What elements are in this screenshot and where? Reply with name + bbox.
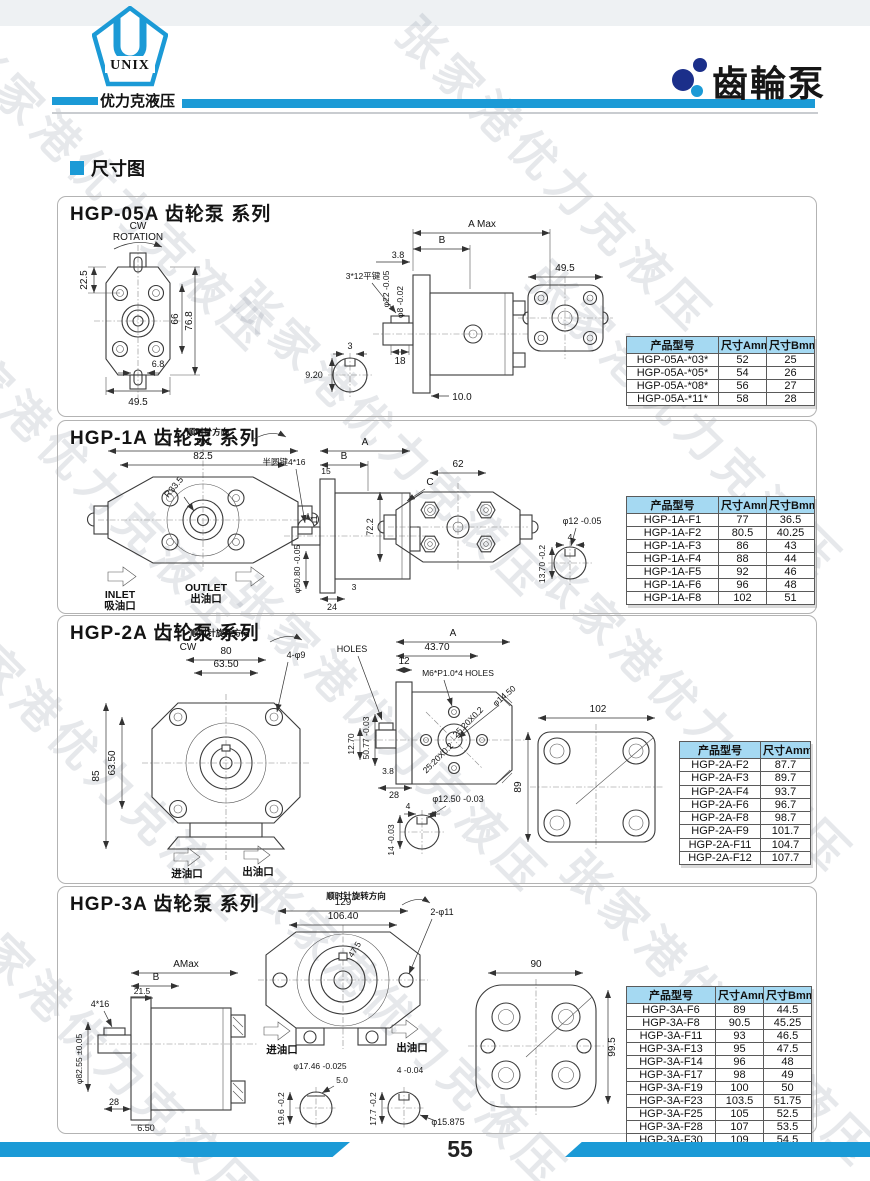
table-cell: 26 — [767, 367, 815, 380]
svg-text:102: 102 — [590, 704, 607, 715]
table-header-cell: 尺寸Amm — [761, 742, 811, 759]
svg-text:HOLES: HOLES — [337, 644, 368, 654]
table-cell: 45.25 — [764, 1017, 812, 1030]
svg-text:出油口: 出油口 — [242, 865, 274, 878]
svg-text:80: 80 — [220, 646, 232, 657]
table-cell: 56 — [719, 380, 767, 393]
table-cell: HGP-3A-F6 — [627, 1004, 716, 1017]
svg-text:3.8: 3.8 — [392, 250, 405, 260]
svg-text:出油口: 出油口 — [190, 592, 222, 605]
table-header-cell: 产品型号 — [627, 987, 716, 1004]
table-row: HGP-3A-F139547.5 — [627, 1043, 812, 1056]
svg-text:6.8: 6.8 — [152, 359, 165, 369]
svg-text:89: 89 — [513, 781, 524, 793]
table-cell: 58 — [719, 393, 767, 406]
table-cell: 86 — [719, 540, 767, 553]
svg-text:76.8: 76.8 — [184, 311, 195, 331]
table-row: HGP-3A-F2810753.5 — [627, 1121, 812, 1134]
header-divider — [52, 112, 818, 114]
table-row: HGP-2A-F389.7 — [680, 772, 811, 785]
svg-text:90: 90 — [530, 959, 542, 970]
table-cell: HGP-2A-F11 — [680, 838, 761, 851]
table-header-row: 产品型号尺寸Amm尺寸Bmm — [627, 337, 815, 354]
svg-text:3: 3 — [352, 582, 357, 592]
table-cell: HGP-3A-F17 — [627, 1069, 716, 1082]
table-cell: 92 — [719, 566, 767, 579]
svg-text:顺时针旋转方向: 顺时针旋转方向 — [190, 628, 250, 638]
svg-text:吸油口: 吸油口 — [104, 599, 136, 612]
table-cell: HGP-1A-F4 — [627, 553, 719, 566]
table-row: HGP-2A-F898.7 — [680, 812, 811, 825]
table-cell: HGP-1A-F8 — [627, 592, 719, 605]
table-row: HGP-3A-F890.545.25 — [627, 1017, 812, 1030]
table-cell: 44.5 — [764, 1004, 812, 1017]
table-header-cell: 尺寸Bmm — [767, 497, 815, 514]
table-cell: 102 — [719, 592, 767, 605]
table-cell: 98.7 — [761, 812, 811, 825]
rear-view: 90 99.5 — [468, 959, 618, 1115]
table-row: HGP-3A-F1910050 — [627, 1082, 812, 1095]
table-header-cell: 产品型号 — [680, 742, 761, 759]
table-cell: HGP-2A-F3 — [680, 772, 761, 785]
svg-text:A: A — [450, 628, 457, 639]
table-cell: HGP-3A-F8 — [627, 1017, 716, 1030]
svg-text:CW: CW — [180, 642, 197, 653]
table-cell: 54 — [719, 367, 767, 380]
svg-text:进油口: 进油口 — [266, 1043, 298, 1056]
svg-text:ROTATION: ROTATION — [113, 232, 163, 243]
table-cell: 100 — [716, 1082, 764, 1095]
footer-bar-right — [565, 1142, 870, 1157]
svg-text:21.5: 21.5 — [134, 986, 151, 996]
side-view: AMax B 21.5 4*16 φ82.55 ±0.05 28 — [74, 959, 258, 1133]
svg-text:φ15.875: φ15.875 — [431, 1117, 464, 1127]
svg-text:B: B — [153, 972, 160, 983]
svg-text:出油口: 出油口 — [396, 1041, 428, 1054]
table-cell: 44 — [767, 553, 815, 566]
table-cell: 96.7 — [761, 798, 811, 811]
table-header-cell: 尺寸Amm — [719, 497, 767, 514]
hgp-2a-section: HGP-2A 齿轮泵 系列 顺时针旋转方向 CW — [57, 615, 817, 884]
table-cell: 27 — [767, 380, 815, 393]
svg-text:25.20X0.2: 25.20X0.2 — [451, 704, 486, 739]
page-number: 55 — [425, 1136, 495, 1163]
table-row: HGP-1A-F69648 — [627, 579, 815, 592]
table-cell: 52 — [719, 354, 767, 367]
table-cell: 96 — [719, 579, 767, 592]
table-cell: 90.5 — [716, 1017, 764, 1030]
table-cell: HGP-05A-*11* — [627, 393, 719, 406]
hgp-3a-section: HGP-3A 齿轮泵 系列 AMax B 21.5 — [57, 886, 817, 1134]
svg-text:62: 62 — [452, 459, 464, 470]
table-header-cell: 尺寸Bmm — [767, 337, 815, 354]
table-row: HGP-3A-F149648 — [627, 1056, 812, 1069]
hgp-1a-section: HGP-1A 齿轮泵 系列 顺时针方向 101 — [57, 420, 817, 614]
table-cell: 107 — [716, 1121, 764, 1134]
table-cell: 50 — [764, 1082, 812, 1095]
table-cell: 51.75 — [764, 1095, 812, 1108]
table-cell: HGP-1A-F6 — [627, 579, 719, 592]
hgp-05a-dimension-table: 产品型号尺寸Amm尺寸BmmHGP-05A-*03*5225HGP-05A-*0… — [626, 336, 815, 406]
svg-text:85: 85 — [91, 770, 102, 782]
dimension-diagram-heading: 尺寸图 — [70, 155, 145, 181]
table-header-cell: 尺寸Amm — [719, 337, 767, 354]
table-cell: HGP-3A-F25 — [627, 1108, 716, 1121]
svg-text:3.8: 3.8 — [382, 766, 394, 776]
svg-text:进油口: 进油口 — [171, 867, 203, 880]
table-cell: 48 — [767, 579, 815, 592]
svg-text:φ12 -0.05: φ12 -0.05 — [563, 516, 602, 526]
unix-logo: UNIX — [92, 6, 168, 88]
svg-text:19.6 -0.2: 19.6 -0.2 — [276, 1092, 286, 1126]
table-row: HGP-05A-*08*5627 — [627, 380, 815, 393]
footer-bar-left — [0, 1142, 350, 1157]
hgp-1a-dimension-table: 产品型号尺寸Amm尺寸BmmHGP-1A-F17736.5HGP-1A-F280… — [626, 496, 815, 605]
svg-text:47.5: 47.5 — [346, 940, 363, 960]
shaft-end-detail-1: φ17.46 -0.025 5.0 19.6 -0.2 — [276, 1061, 348, 1129]
svg-text:φ82.55 ±0.05: φ82.55 ±0.05 — [74, 1034, 84, 1085]
table-cell: HGP-3A-F28 — [627, 1121, 716, 1134]
svg-text:5.0: 5.0 — [336, 1075, 348, 1085]
table-row: HGP-3A-F68944.5 — [627, 1004, 812, 1017]
table-cell: 103.5 — [716, 1095, 764, 1108]
table-row: HGP-1A-F59246 — [627, 566, 815, 579]
table-cell: 47.5 — [764, 1043, 812, 1056]
table-cell: 105 — [716, 1108, 764, 1121]
svg-text:12.70: 12.70 — [346, 733, 356, 755]
front-view: 顺时针方向 101 82.5 R33.5 11 INLET 吸油口 OUTLET… — [88, 427, 320, 612]
svg-text:3: 3 — [347, 341, 352, 351]
table-cell: 43 — [767, 540, 815, 553]
table-cell: 101.7 — [761, 825, 811, 838]
svg-text:3*12平键: 3*12平键 — [346, 271, 381, 281]
hgp-3a-dimension-table: 产品型号尺寸Amm尺寸BmmHGP-3A-F68944.5HGP-3A-F890… — [626, 986, 812, 1147]
svg-text:AMax: AMax — [173, 959, 199, 970]
svg-text:17.7 -0.2: 17.7 -0.2 — [368, 1092, 378, 1126]
rear-view: 49.5 — [518, 263, 613, 359]
table-cell: 89.7 — [761, 772, 811, 785]
table-cell: 53.5 — [764, 1121, 812, 1134]
table-row: HGP-1A-F280.540.25 — [627, 527, 815, 540]
svg-text:顺时针方向: 顺时针方向 — [187, 427, 230, 437]
svg-text:4-φ9: 4-φ9 — [287, 650, 306, 660]
svg-text:φ50.80 -0.05: φ50.80 -0.05 — [292, 544, 302, 593]
rear-view: 102 89 — [513, 704, 663, 850]
shaft-end-detail: φ12 -0.05 4 13.70 -0.2 — [537, 516, 601, 585]
table-cell: HGP-3A-F14 — [627, 1056, 716, 1069]
table-cell: 52.5 — [764, 1108, 812, 1121]
front-view: CW ROTATION 22.5 66 76.8 6.8 49.5 — [79, 221, 200, 408]
table-row: HGP-05A-*05*5426 — [627, 367, 815, 380]
table-cell: HGP-05A-*03* — [627, 354, 719, 367]
side-view: 半圆键4*16 A B 15 C φ50.80 -0.05 24 3 — [263, 437, 434, 612]
svg-text:24: 24 — [327, 602, 337, 612]
svg-text:B: B — [439, 235, 446, 246]
table-cell: 46 — [767, 566, 815, 579]
svg-text:2-φ11: 2-φ11 — [430, 907, 453, 917]
svg-text:4 -0.04: 4 -0.04 — [397, 1065, 424, 1075]
svg-text:半圆键4*16: 半圆键4*16 — [263, 457, 306, 467]
svg-text:82.5: 82.5 — [193, 451, 213, 462]
svg-text:φ12.50 -0.03: φ12.50 -0.03 — [432, 794, 483, 804]
svg-text:13.70 -0.2: 13.70 -0.2 — [537, 545, 547, 584]
svg-text:49.5: 49.5 — [128, 397, 148, 408]
table-row: HGP-1A-F17736.5 — [627, 514, 815, 527]
header-bar-left — [52, 97, 98, 105]
catalog-page: 张家港优力克液压 张家港优力克液压 张家港优力克液压 张家港优力克液压 张家港优… — [0, 0, 870, 1181]
table-row: HGP-05A-*03*5225 — [627, 354, 815, 367]
table-cell: 89 — [716, 1004, 764, 1017]
table-cell: 98 — [716, 1069, 764, 1082]
svg-text:4*16: 4*16 — [91, 999, 110, 1009]
dimension-diagram-label: 尺寸图 — [91, 155, 145, 181]
shaft-end-detail: 3 9.20 — [305, 341, 372, 397]
table-cell: HGP-1A-F2 — [627, 527, 719, 540]
table-cell: HGP-05A-*05* — [627, 367, 719, 380]
table-cell: 28 — [767, 393, 815, 406]
table-cell: 87.7 — [761, 759, 811, 772]
table-cell: 88 — [719, 553, 767, 566]
table-cell: HGP-2A-F8 — [680, 812, 761, 825]
svg-text:12: 12 — [398, 656, 410, 667]
table-cell: 95 — [716, 1043, 764, 1056]
table-cell: HGP-3A-F11 — [627, 1030, 716, 1043]
table-row: HGP-2A-F12107.7 — [680, 851, 811, 864]
svg-text:28: 28 — [389, 790, 399, 800]
table-cell: 48 — [764, 1056, 812, 1069]
table-cell: 49 — [764, 1069, 812, 1082]
table-row: HGP-3A-F2510552.5 — [627, 1108, 812, 1121]
svg-text:49.5: 49.5 — [555, 263, 575, 274]
table-cell: 25 — [767, 354, 815, 367]
svg-text:φ8 -0.02: φ8 -0.02 — [395, 286, 405, 318]
table-cell: 40.25 — [767, 527, 815, 540]
table-row: HGP-3A-F23103.551.75 — [627, 1095, 812, 1108]
side-view: HOLES A 43.70 12 M6*P1.0*4 HOLES — [337, 628, 526, 800]
svg-text:A: A — [362, 437, 369, 448]
svg-text:4: 4 — [568, 532, 573, 542]
front-view: 顺时针旋转方向 129 106.40 47.5 2-φ11 进油口 出 — [258, 891, 454, 1056]
table-cell: 36.5 — [767, 514, 815, 527]
svg-text:63.50: 63.50 — [107, 750, 118, 775]
table-cell: HGP-3A-F13 — [627, 1043, 716, 1056]
table-row: HGP-2A-F287.7 — [680, 759, 811, 772]
table-cell: HGP-05A-*08* — [627, 380, 719, 393]
table-cell: 93 — [716, 1030, 764, 1043]
table-header-row: 产品型号尺寸Amm — [680, 742, 811, 759]
table-cell: HGP-2A-F9 — [680, 825, 761, 838]
svg-text:99.5: 99.5 — [607, 1037, 618, 1057]
svg-text:15: 15 — [321, 466, 331, 476]
svg-text:A Max: A Max — [468, 219, 496, 230]
svg-text:18: 18 — [394, 356, 406, 367]
svg-text:28: 28 — [109, 1097, 119, 1107]
table-header-cell: 产品型号 — [627, 497, 719, 514]
table-cell: 107.7 — [761, 851, 811, 864]
table-row: HGP-2A-F11104.7 — [680, 838, 811, 851]
square-bullet-icon — [70, 161, 84, 175]
svg-text:66: 66 — [170, 313, 181, 325]
shaft-end-detail-2: 4 -0.04 17.7 -0.2 φ15.875 — [368, 1065, 465, 1129]
table-header-cell: 产品型号 — [627, 337, 719, 354]
table-cell: 93.7 — [761, 785, 811, 798]
table-row: HGP-05A-*11*5828 — [627, 393, 815, 406]
svg-text:φ22 -0.05: φ22 -0.05 — [381, 270, 391, 307]
table-cell: 104.7 — [761, 838, 811, 851]
shaft-end-detail: φ12.50 -0.03 4 14 -0.03 — [386, 794, 484, 856]
svg-text:4: 4 — [406, 801, 411, 811]
svg-text:9.20: 9.20 — [305, 370, 323, 380]
svg-text:C: C — [426, 477, 433, 488]
table-cell: HGP-3A-F19 — [627, 1082, 716, 1095]
svg-text:14 -0.03: 14 -0.03 — [386, 824, 396, 855]
svg-text:6.50: 6.50 — [137, 1123, 155, 1133]
svg-text:M6*P1.0*4 HOLES: M6*P1.0*4 HOLES — [422, 668, 494, 678]
page-title: 齒輪泵 — [712, 55, 826, 107]
svg-text:129: 129 — [335, 897, 352, 908]
table-row: HGP-3A-F119346.5 — [627, 1030, 812, 1043]
table-cell: 46.5 — [764, 1030, 812, 1043]
table-cell: HGP-1A-F3 — [627, 540, 719, 553]
svg-text:72.2: 72.2 — [365, 518, 375, 536]
table-header-row: 产品型号尺寸Amm尺寸Bmm — [627, 497, 815, 514]
table-row: HGP-1A-F810251 — [627, 592, 815, 605]
rear-view: 62 72.2 — [365, 459, 538, 571]
logo-caption: 优力克液压 — [100, 90, 175, 111]
table-row: HGP-3A-F179849 — [627, 1069, 812, 1082]
svg-text:22.5: 22.5 — [79, 270, 90, 290]
svg-text:63.50: 63.50 — [213, 659, 238, 670]
svg-text:106.40: 106.40 — [328, 911, 359, 922]
table-row: HGP-2A-F696.7 — [680, 798, 811, 811]
table-cell: HGP-2A-F2 — [680, 759, 761, 772]
svg-text:50.77 -0.03: 50.77 -0.03 — [361, 716, 371, 759]
svg-text:φ14.50: φ14.50 — [491, 683, 518, 708]
table-cell: 77 — [719, 514, 767, 527]
table-cell: HGP-3A-F23 — [627, 1095, 716, 1108]
svg-text:B: B — [341, 451, 348, 462]
logo-text: UNIX — [110, 58, 150, 73]
table-header-cell: 尺寸Amm — [716, 987, 764, 1004]
table-cell: HGP-2A-F12 — [680, 851, 761, 864]
hgp-2a-dimension-table: 产品型号尺寸AmmHGP-2A-F287.7HGP-2A-F389.7HGP-2… — [679, 741, 811, 865]
front-view: 顺时针旋转方向 CW 80 63.50 4-φ9 85 63.50 进油口 出油… — [91, 628, 310, 880]
svg-text:43.70: 43.70 — [424, 642, 449, 653]
table-row: HGP-1A-F48844 — [627, 553, 815, 566]
table-cell: HGP-2A-F4 — [680, 785, 761, 798]
title-dots-icon — [666, 54, 712, 100]
svg-text:CW: CW — [130, 221, 147, 232]
svg-text:R33.5: R33.5 — [162, 475, 185, 500]
table-row: HGP-2A-F9101.7 — [680, 825, 811, 838]
table-cell: HGP-1A-F1 — [627, 514, 719, 527]
svg-text:10.0: 10.0 — [452, 392, 472, 403]
svg-text:φ17.46 -0.025: φ17.46 -0.025 — [293, 1061, 347, 1071]
table-row: HGP-2A-F493.7 — [680, 785, 811, 798]
hgp-05a-section: HGP-05A 齿轮泵 系列 CW ROTATION — [57, 196, 817, 417]
svg-text:101: 101 — [195, 437, 212, 448]
table-cell: 51 — [767, 592, 815, 605]
table-row: HGP-1A-F38643 — [627, 540, 815, 553]
table-header-cell: 尺寸Bmm — [764, 987, 812, 1004]
table-cell: HGP-1A-F5 — [627, 566, 719, 579]
table-header-row: 产品型号尺寸Amm尺寸Bmm — [627, 987, 812, 1004]
table-cell: 80.5 — [719, 527, 767, 540]
side-view: A Max B 3.8 φ22 -0.05 φ8 -0.02 3*12平键 18… — [346, 219, 550, 403]
table-cell: HGP-2A-F6 — [680, 798, 761, 811]
table-cell: 96 — [716, 1056, 764, 1069]
